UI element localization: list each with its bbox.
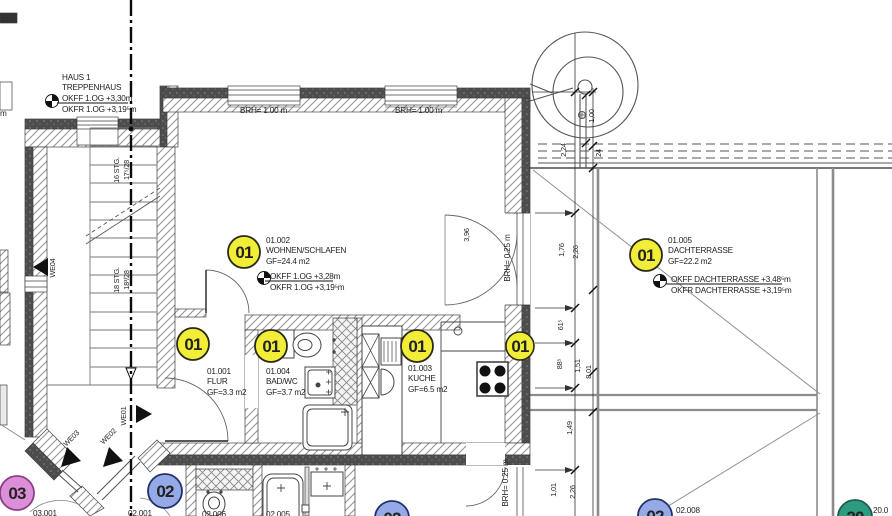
terrace-area bbox=[530, 32, 892, 516]
wohnen-area: GF=24.4 m2 bbox=[266, 257, 310, 266]
stair-lower-line2: 18³/28 bbox=[122, 270, 131, 290]
badge-01-wohnen: 01 bbox=[228, 236, 260, 268]
dim-226b: 2,26 bbox=[568, 485, 577, 499]
brh-top-right: BRH= 1.00 m bbox=[395, 106, 443, 115]
dim-100: 1,00 bbox=[587, 109, 596, 123]
bad-name: BAD/WC bbox=[266, 377, 298, 386]
wall-02 bbox=[186, 465, 196, 516]
terrasse-okfr: OKFR DACHTERRASSE +3,19⁵m bbox=[671, 286, 792, 295]
north-wall-insulation bbox=[163, 88, 530, 98]
wall-fragment bbox=[0, 82, 12, 110]
staircase bbox=[47, 127, 160, 386]
badge-20: 20 bbox=[838, 500, 872, 516]
wall-fragment bbox=[0, 293, 10, 345]
window-north-right bbox=[385, 86, 457, 107]
badge-label: 01 bbox=[262, 337, 280, 356]
level-marker-icon bbox=[46, 95, 59, 108]
terrasse-name: DACHTERRASSE bbox=[668, 246, 734, 255]
stair-upper-line1: 16 STG. bbox=[112, 157, 121, 183]
dim-176: 1,76 bbox=[557, 243, 566, 257]
south-door bbox=[466, 467, 505, 506]
treppenhaus-okff: OKFF 1.OG +3,30m bbox=[62, 94, 133, 103]
kueche-number: 01.003 bbox=[408, 364, 432, 373]
dim-149: 1,49 bbox=[565, 421, 574, 435]
wall-02 bbox=[345, 465, 355, 516]
terrasse-okff: OKFF DACHTERRASSE +3,48⁵m bbox=[671, 275, 791, 284]
we02-arrow-icon bbox=[103, 447, 123, 467]
flur-number: 01.001 bbox=[207, 367, 231, 376]
flur-name: FLUR bbox=[207, 377, 228, 386]
badge-01-flur: 01 bbox=[177, 328, 209, 360]
badge-02-left: 02 bbox=[148, 474, 182, 508]
washbasin bbox=[305, 367, 335, 398]
bad-area: GF=3.7 m2 bbox=[266, 388, 306, 397]
brh-top-left: BRH= 1.00 m bbox=[240, 106, 288, 115]
wall-fragment bbox=[0, 385, 7, 425]
wohnen-name: WOHNEN/SCHLAFEN bbox=[266, 246, 347, 255]
installation-shaft bbox=[333, 318, 357, 405]
badge-01-small: 01 bbox=[506, 332, 534, 360]
label-20: 20.0 bbox=[873, 506, 889, 515]
badge-02-middle: 02 bbox=[375, 501, 409, 516]
treppenhaus-line1: HAUS 1 bbox=[62, 73, 91, 82]
flur-area: GF=3.3 m2 bbox=[207, 388, 247, 397]
label-03001: 03.001 bbox=[33, 509, 57, 516]
brh-east-lower: BRH= 0.25 m bbox=[501, 459, 510, 507]
terrace-railing bbox=[530, 144, 892, 168]
level-marker-icon bbox=[258, 272, 271, 285]
dim-151: 1,51 bbox=[573, 359, 582, 373]
dimension-chains bbox=[532, 33, 597, 516]
wohnen-okff: OKFF 1.OG +3,28m bbox=[270, 272, 341, 281]
badge-01-terrasse: 01 bbox=[630, 239, 662, 271]
stove bbox=[477, 362, 508, 396]
dim-24: 24 bbox=[594, 149, 603, 157]
wall-02 bbox=[253, 465, 262, 516]
floor-plan-canvas: 01 01 01 01 01 01 02 03 bbox=[0, 0, 892, 516]
level-marker-icon bbox=[654, 275, 667, 288]
bath-door-opening bbox=[245, 355, 258, 408]
badge-label: 01 bbox=[184, 335, 202, 354]
dim-224: 2,24 bbox=[559, 143, 568, 157]
tower-top-window bbox=[77, 117, 118, 145]
stair-upper-line2: 17⁵/28 bbox=[122, 160, 131, 180]
brh-east-upper: BRH= 0.25 m bbox=[503, 234, 512, 282]
badge-label: 02 bbox=[383, 509, 401, 516]
wohnen-okfr: OKFR 1.OG +3,19⁵m bbox=[270, 283, 345, 292]
treppenhaus-line2: TREPPENHAUS bbox=[62, 83, 122, 92]
label-02005: 02.005 bbox=[266, 510, 290, 516]
badge-03: 03 bbox=[0, 476, 34, 510]
label-02006: 02.006 bbox=[202, 510, 226, 516]
kitchen-tall-units bbox=[362, 326, 402, 455]
we02-label: WE02 bbox=[98, 426, 118, 446]
dim-615: 61⁵ bbox=[556, 320, 565, 331]
badge-label: 20 bbox=[846, 508, 864, 516]
window-north-left bbox=[228, 86, 300, 107]
badge-label: 03 bbox=[8, 484, 26, 503]
we04-label: WE04 bbox=[48, 258, 57, 277]
badge-label: 02 bbox=[156, 482, 174, 501]
north-wall bbox=[163, 98, 530, 112]
dim-396: 3,96 bbox=[462, 228, 471, 242]
stair-break-line-dashed bbox=[86, 188, 160, 236]
badge-01-bad: 01 bbox=[255, 330, 287, 362]
badge-label: 01 bbox=[511, 337, 529, 356]
left-edge-fragment: m bbox=[0, 109, 7, 118]
we01-arrow-icon bbox=[136, 405, 152, 423]
terrasse-area: GF=22.2 m2 bbox=[668, 257, 712, 266]
badge-label: 02 bbox=[646, 507, 664, 516]
wohnen-number: 01.002 bbox=[266, 236, 290, 245]
bad-number: 01.004 bbox=[266, 367, 290, 376]
kueche-area: GF=6.5 m2 bbox=[408, 385, 448, 394]
flur-stub-wall bbox=[175, 309, 206, 317]
dim-885: 88⁵ bbox=[555, 359, 564, 370]
floor-plan-drawing: 01 01 01 01 01 01 02 03 bbox=[0, 0, 892, 516]
label-02001: 02.001 bbox=[128, 509, 152, 516]
badge-01-kueche: 01 bbox=[401, 330, 433, 362]
badge-label: 01 bbox=[637, 246, 655, 265]
we01-label: WE01 bbox=[119, 406, 128, 425]
dim-101: 1,01 bbox=[549, 483, 558, 497]
tower-left-window bbox=[25, 276, 47, 292]
bath-kitchen-divider bbox=[357, 318, 362, 443]
prewall-02 bbox=[196, 469, 253, 490]
south-door-opening bbox=[466, 443, 505, 465]
badge-02-terrasse: 02 bbox=[638, 499, 672, 516]
wall-fragment bbox=[0, 13, 17, 23]
wall-fragment bbox=[0, 250, 8, 292]
flur-wohnen-door bbox=[206, 270, 249, 313]
treppenhaus-okfr: OKFR 1.OG +3,19⁵m bbox=[62, 105, 137, 114]
badge-label: 01 bbox=[408, 337, 426, 356]
kueche-name: KUCHE bbox=[408, 374, 436, 383]
we03-label: WE03 bbox=[61, 428, 81, 448]
dim-801: 8,01 bbox=[584, 365, 593, 379]
terrasse-number: 01.005 bbox=[668, 236, 692, 245]
stair-lower-line1: 18 STG. bbox=[112, 267, 121, 293]
entrance-walls bbox=[25, 429, 170, 516]
label-02008: 02.008 bbox=[676, 506, 700, 515]
dim-226a: 2,26 bbox=[571, 245, 580, 259]
round-detail-icon bbox=[530, 32, 638, 168]
tower-right-wall bbox=[157, 147, 175, 388]
badge-label: 01 bbox=[235, 243, 253, 262]
shower bbox=[303, 405, 352, 450]
